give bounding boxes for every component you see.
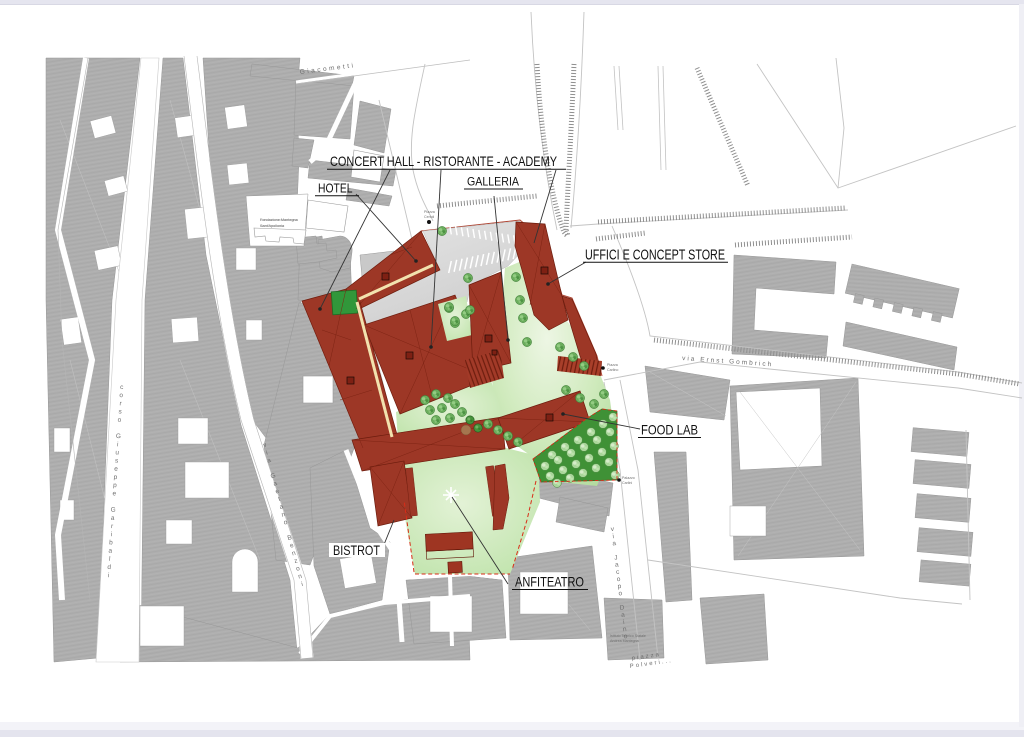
svg-text:Palazzo: Palazzo — [622, 476, 635, 480]
svg-text:Carlini: Carlini — [622, 481, 632, 485]
svg-text:HOTEL: HOTEL — [318, 181, 353, 196]
svg-text:Sant'Apollonia: Sant'Apollonia — [260, 224, 285, 228]
svg-text:UFFICI E CONCEPT STORE: UFFICI E CONCEPT STORE — [585, 248, 725, 264]
svg-text:Piazza: Piazza — [424, 210, 435, 214]
svg-text:Carlino: Carlino — [607, 368, 618, 372]
svg-text:CONCERT HALL - RISTORANTE - AC: CONCERT HALL - RISTORANTE - ACADEMY — [330, 153, 558, 169]
svg-text:GALLERIA: GALLERIA — [467, 175, 519, 189]
svg-text:Cerioli: Cerioli — [424, 215, 434, 219]
svg-text:Istituto Tecnico Statale: Istituto Tecnico Statale — [610, 634, 646, 638]
svg-text:Piazza: Piazza — [607, 363, 618, 367]
svg-text:FOOD LAB: FOOD LAB — [641, 422, 698, 438]
svg-text:ANFITEATRO: ANFITEATRO — [515, 574, 584, 590]
svg-text:BISTROT: BISTROT — [333, 542, 380, 558]
svg-text:Fondazione Mantegna: Fondazione Mantegna — [260, 218, 299, 222]
svg-text:Andrea Mantegna: Andrea Mantegna — [610, 639, 639, 643]
